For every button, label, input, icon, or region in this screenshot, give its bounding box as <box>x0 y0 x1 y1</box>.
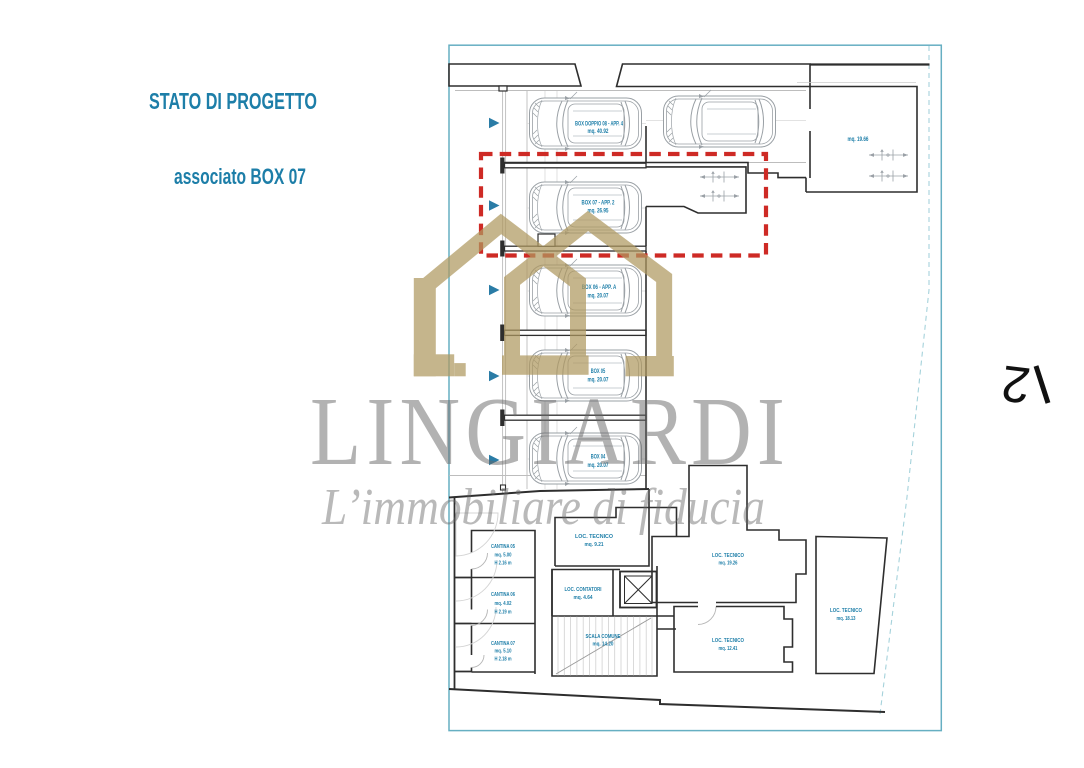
svg-text:CANTINA 05: CANTINA 05 <box>491 544 515 550</box>
svg-text:mq. 19.66: mq. 19.66 <box>848 136 869 143</box>
svg-text:CANTINA 07: CANTINA 07 <box>491 641 515 647</box>
svg-text:LOC. TECNICO: LOC. TECNICO <box>830 608 862 614</box>
svg-text:STATO DI PROGETTO: STATO DI PROGETTO <box>149 88 317 114</box>
svg-text:BOX 06 - APP. A: BOX 06 - APP. A <box>582 284 617 291</box>
svg-text:BOX 05: BOX 05 <box>591 368 606 375</box>
svg-text:mq. 18.13: mq. 18.13 <box>837 616 856 622</box>
svg-text:LINGIARDI: LINGIARDI <box>310 378 790 485</box>
svg-text:mq. 40.92: mq. 40.92 <box>588 128 609 135</box>
svg-text:H 2.19 m: H 2.19 m <box>495 610 512 616</box>
svg-text:mq. 4.02: mq. 4.02 <box>495 601 512 607</box>
svg-text:mq. 9.21: mq. 9.21 <box>585 542 604 548</box>
svg-text:H 2.18 m: H 2.18 m <box>495 657 512 663</box>
svg-text:mq. 14.20: mq. 14.20 <box>593 642 614 648</box>
svg-text:LOC. CONTATORI: LOC. CONTATORI <box>565 587 602 593</box>
svg-text:LOC. TECNICO: LOC. TECNICO <box>712 638 744 644</box>
svg-text:mq. 20.07: mq. 20.07 <box>588 293 609 300</box>
svg-text:SCALA COMUNE: SCALA COMUNE <box>586 634 621 640</box>
svg-text:mq. 19.26: mq. 19.26 <box>719 561 738 567</box>
svg-text:mq. 5.10: mq. 5.10 <box>495 649 512 655</box>
svg-text:CANTINA 06: CANTINA 06 <box>491 592 515 598</box>
svg-text:BOX DOPPIO 08 - APP. 4: BOX DOPPIO 08 - APP. 4 <box>575 120 623 127</box>
svg-text:associato BOX 07: associato BOX 07 <box>174 164 306 189</box>
svg-text:mq. 12.41: mq. 12.41 <box>719 646 738 652</box>
svg-text:L’immobiliare di fiducia: L’immobiliare di fiducia <box>321 479 765 536</box>
svg-text:H 2.16 m: H 2.16 m <box>495 561 512 567</box>
svg-text:mq. 4.64: mq. 4.64 <box>574 595 593 601</box>
svg-text:mq. 5.00: mq. 5.00 <box>495 553 512 559</box>
svg-text:LOC. TECNICO: LOC. TECNICO <box>712 553 744 559</box>
svg-text:BOX 07 - APP. 2: BOX 07 - APP. 2 <box>582 200 615 207</box>
